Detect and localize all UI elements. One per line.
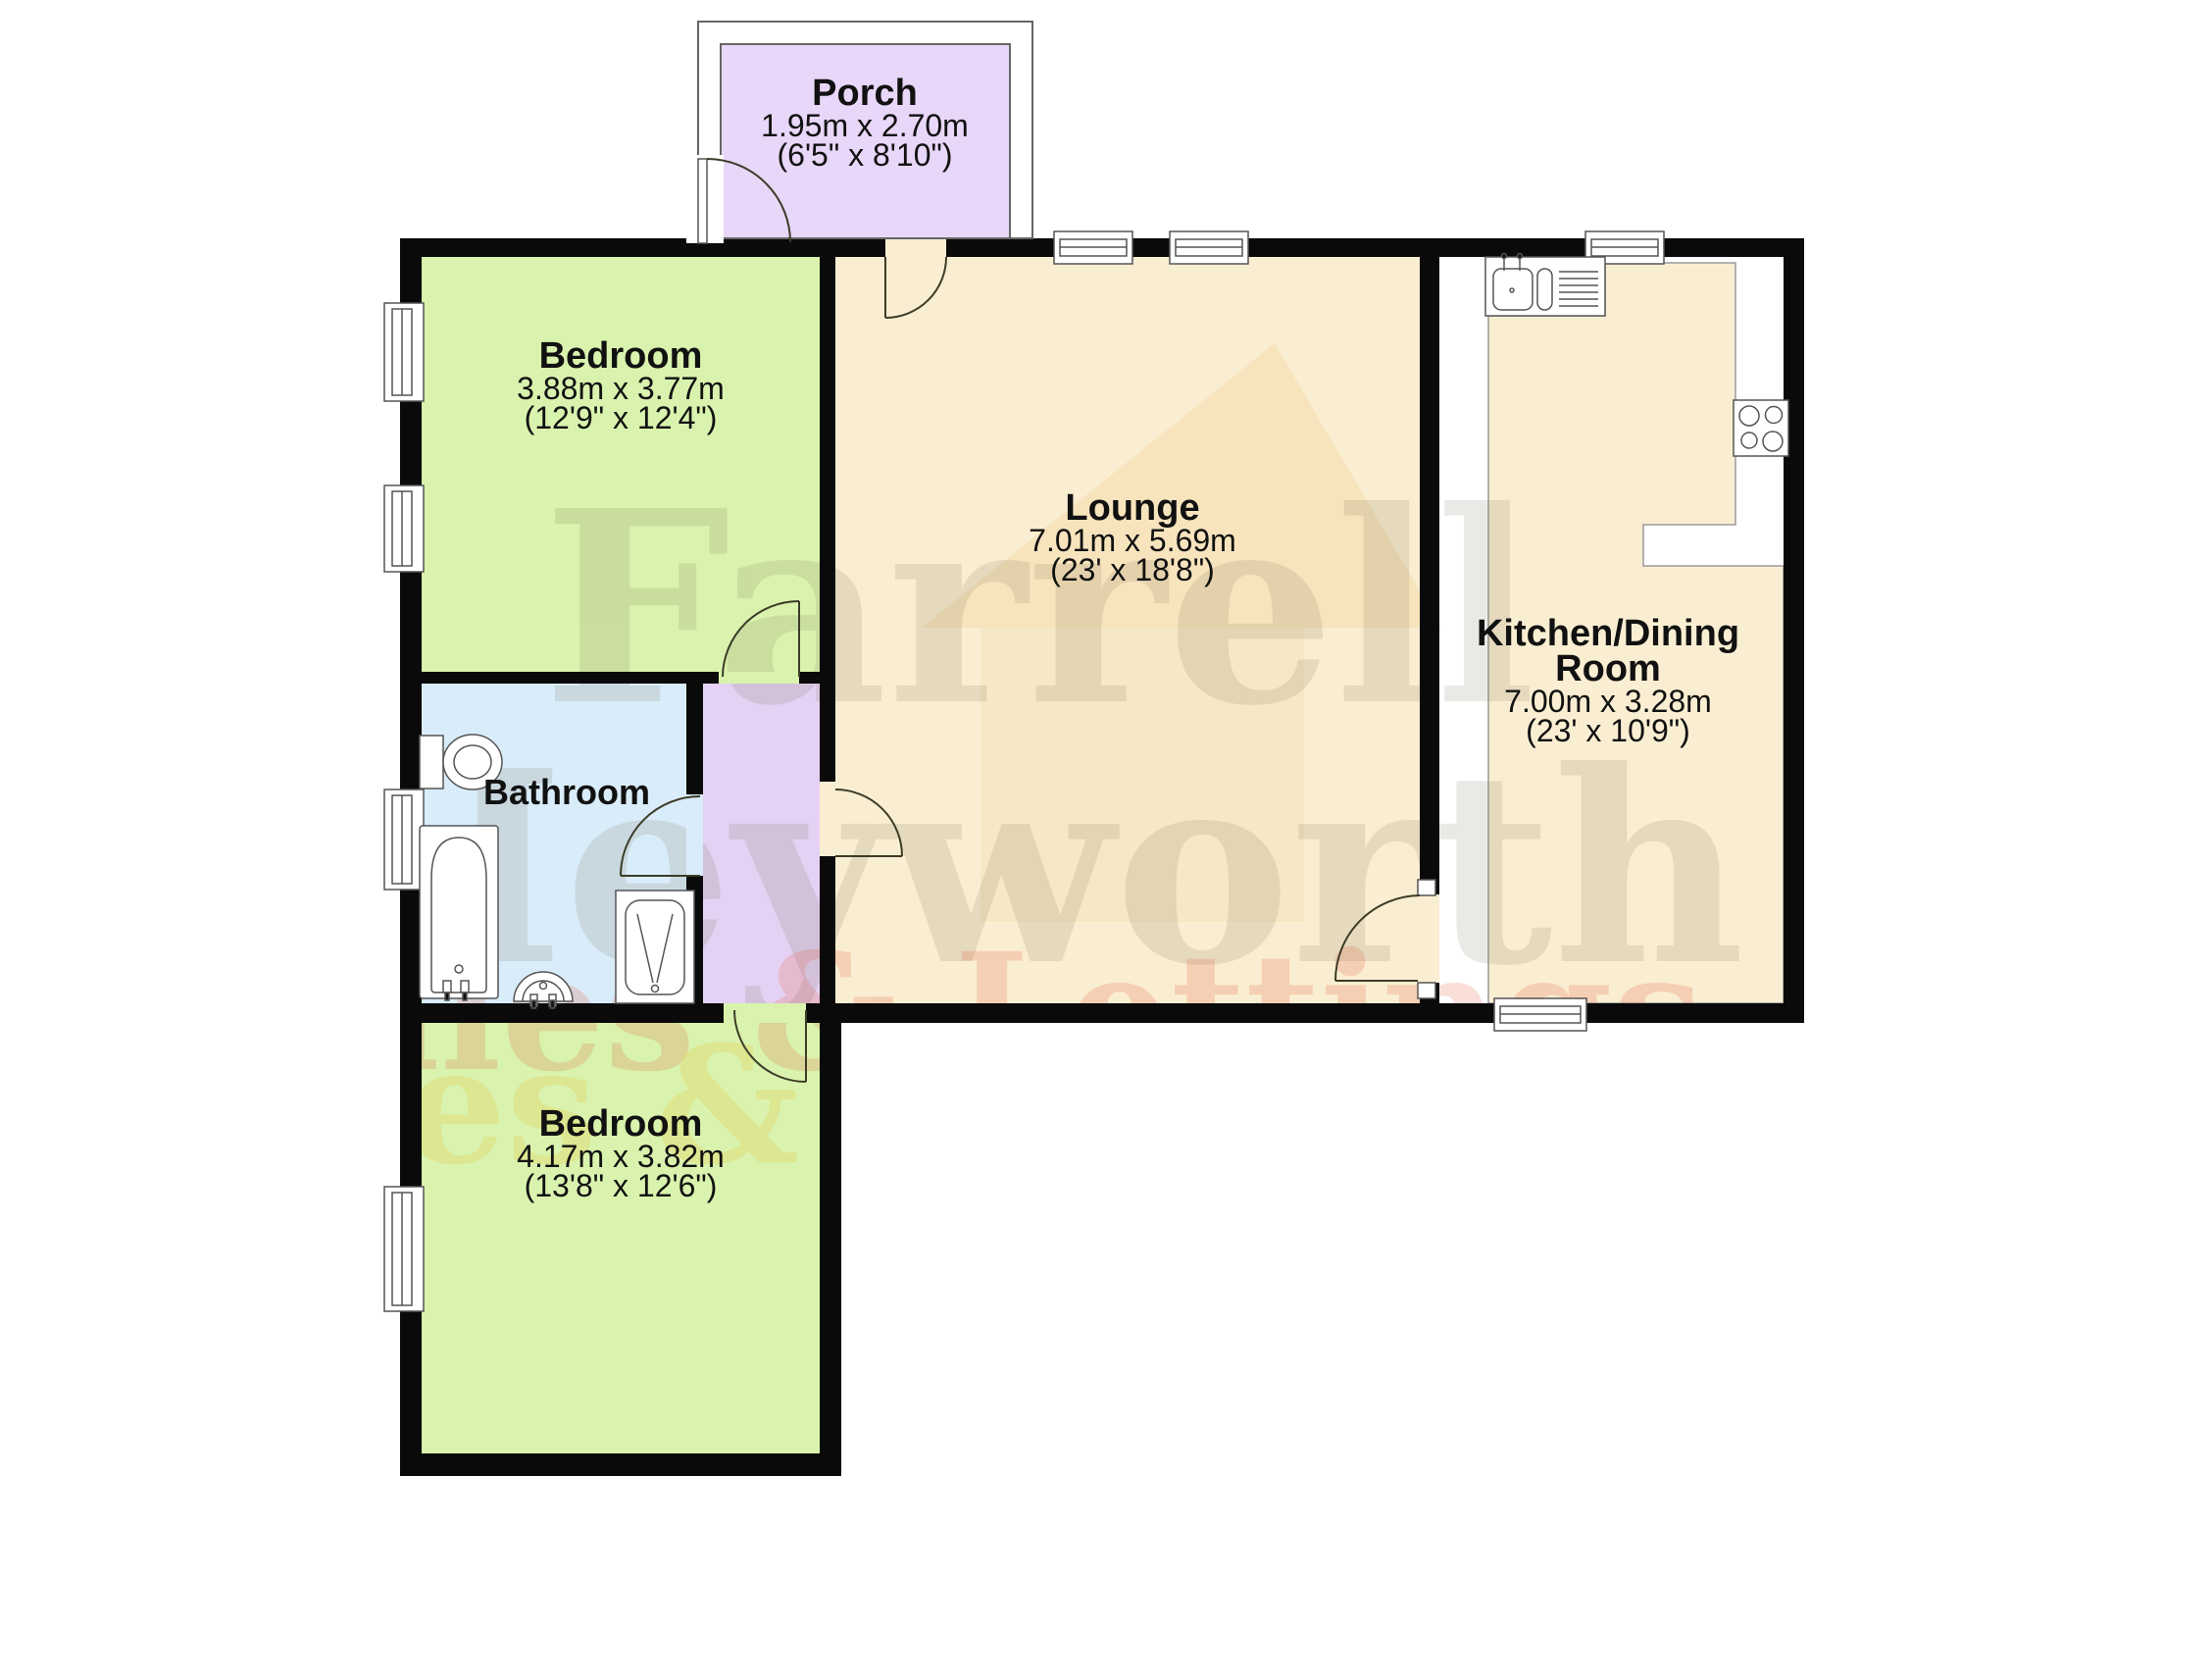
wall-bottom-main xyxy=(806,1003,1804,1023)
wall-hall-lounge xyxy=(820,856,835,1003)
kitchen-name-line1: Kitchen/Dining xyxy=(1477,616,1739,651)
bedroom1-metric: 3.88m x 3.77m xyxy=(517,374,725,403)
wall-bed2-right xyxy=(820,1023,841,1453)
hall-lounge-gap xyxy=(820,782,835,856)
bedroom2-metric: 4.17m x 3.82m xyxy=(517,1142,725,1171)
wall-top-left xyxy=(400,238,885,257)
bathroom-door-gap xyxy=(683,794,705,876)
bedroom2-imperial: (13'8" x 12'6") xyxy=(517,1171,725,1200)
shower-icon xyxy=(616,891,694,1003)
window-bedroom1-left-1 xyxy=(384,303,424,401)
porch-imperial: (6'5" x 8'10") xyxy=(761,140,969,170)
hob-icon xyxy=(1734,400,1788,456)
bedroom2-label: Bedroom 4.17m x 3.82m (13'8" x 12'6") xyxy=(517,1106,725,1200)
lounge-imperial: (23' x 18'8") xyxy=(1029,555,1236,585)
floorplan-drawing: Farrell Heyworth Sales & Lettings Sales … xyxy=(0,0,2212,1680)
window-bedroom2-left xyxy=(384,1187,424,1311)
bathroom-name: Bathroom xyxy=(483,775,650,810)
bedroom1-name: Bedroom xyxy=(517,338,725,374)
bathroom-label: Bathroom xyxy=(483,775,650,810)
watermark-line3-yellow: Sales & Lettings xyxy=(121,1010,1606,1200)
porch-door-panel xyxy=(698,159,707,243)
floorplan-page: Farrell Heyworth Sales & Lettings Sales … xyxy=(0,0,2212,1680)
wall-bath-hall-upper xyxy=(686,684,703,794)
wall-right xyxy=(1784,238,1804,1023)
kitchen-door-gap xyxy=(1420,894,1439,983)
window-bathroom-left xyxy=(384,789,424,890)
porch-lounge-gap xyxy=(885,238,946,257)
window-lounge-top-1 xyxy=(1054,231,1132,264)
kitchen-imperial: (23' x 10'9") xyxy=(1477,716,1739,745)
wall-bath-bottom xyxy=(400,1003,724,1023)
lounge-metric: 7.01m x 5.69m xyxy=(1029,526,1236,555)
wall-bed2-bottom xyxy=(400,1453,841,1476)
kitchen-name-line2: Room xyxy=(1477,651,1739,687)
window-bedroom1-left-2 xyxy=(384,485,424,572)
wall-lounge-kitchen-upper xyxy=(1420,257,1439,894)
bedroom2-name: Bedroom xyxy=(517,1106,725,1142)
wall-bed1-bath xyxy=(400,672,719,684)
lounge-name: Lounge xyxy=(1029,490,1236,526)
watermark: Farrell Heyworth Sales & Lettings Sales … xyxy=(121,343,1745,1200)
lounge-label: Lounge 7.01m x 5.69m (23' x 18'8") xyxy=(1029,490,1236,585)
kitchen-sink-icon xyxy=(1485,254,1605,317)
wall-bed1-lounge xyxy=(820,257,835,782)
kitchen-label: Kitchen/Dining Room 7.00m x 3.28m (23' x… xyxy=(1477,616,1739,745)
porch-name: Porch xyxy=(761,76,969,111)
window-lounge-top-2 xyxy=(1170,231,1248,264)
porch-metric: 1.95m x 2.70m xyxy=(761,111,969,140)
window-kitchen-bottom xyxy=(1494,998,1586,1031)
kitchen-metric: 7.00m x 3.28m xyxy=(1477,687,1739,716)
bedroom1-label: Bedroom 3.88m x 3.77m (12'9" x 12'4") xyxy=(517,338,725,433)
porch-label: Porch 1.95m x 2.70m (6'5" x 8'10") xyxy=(761,76,969,170)
bathtub-icon xyxy=(420,826,498,1000)
bedroom1-imperial: (12'9" x 12'4") xyxy=(517,403,725,433)
